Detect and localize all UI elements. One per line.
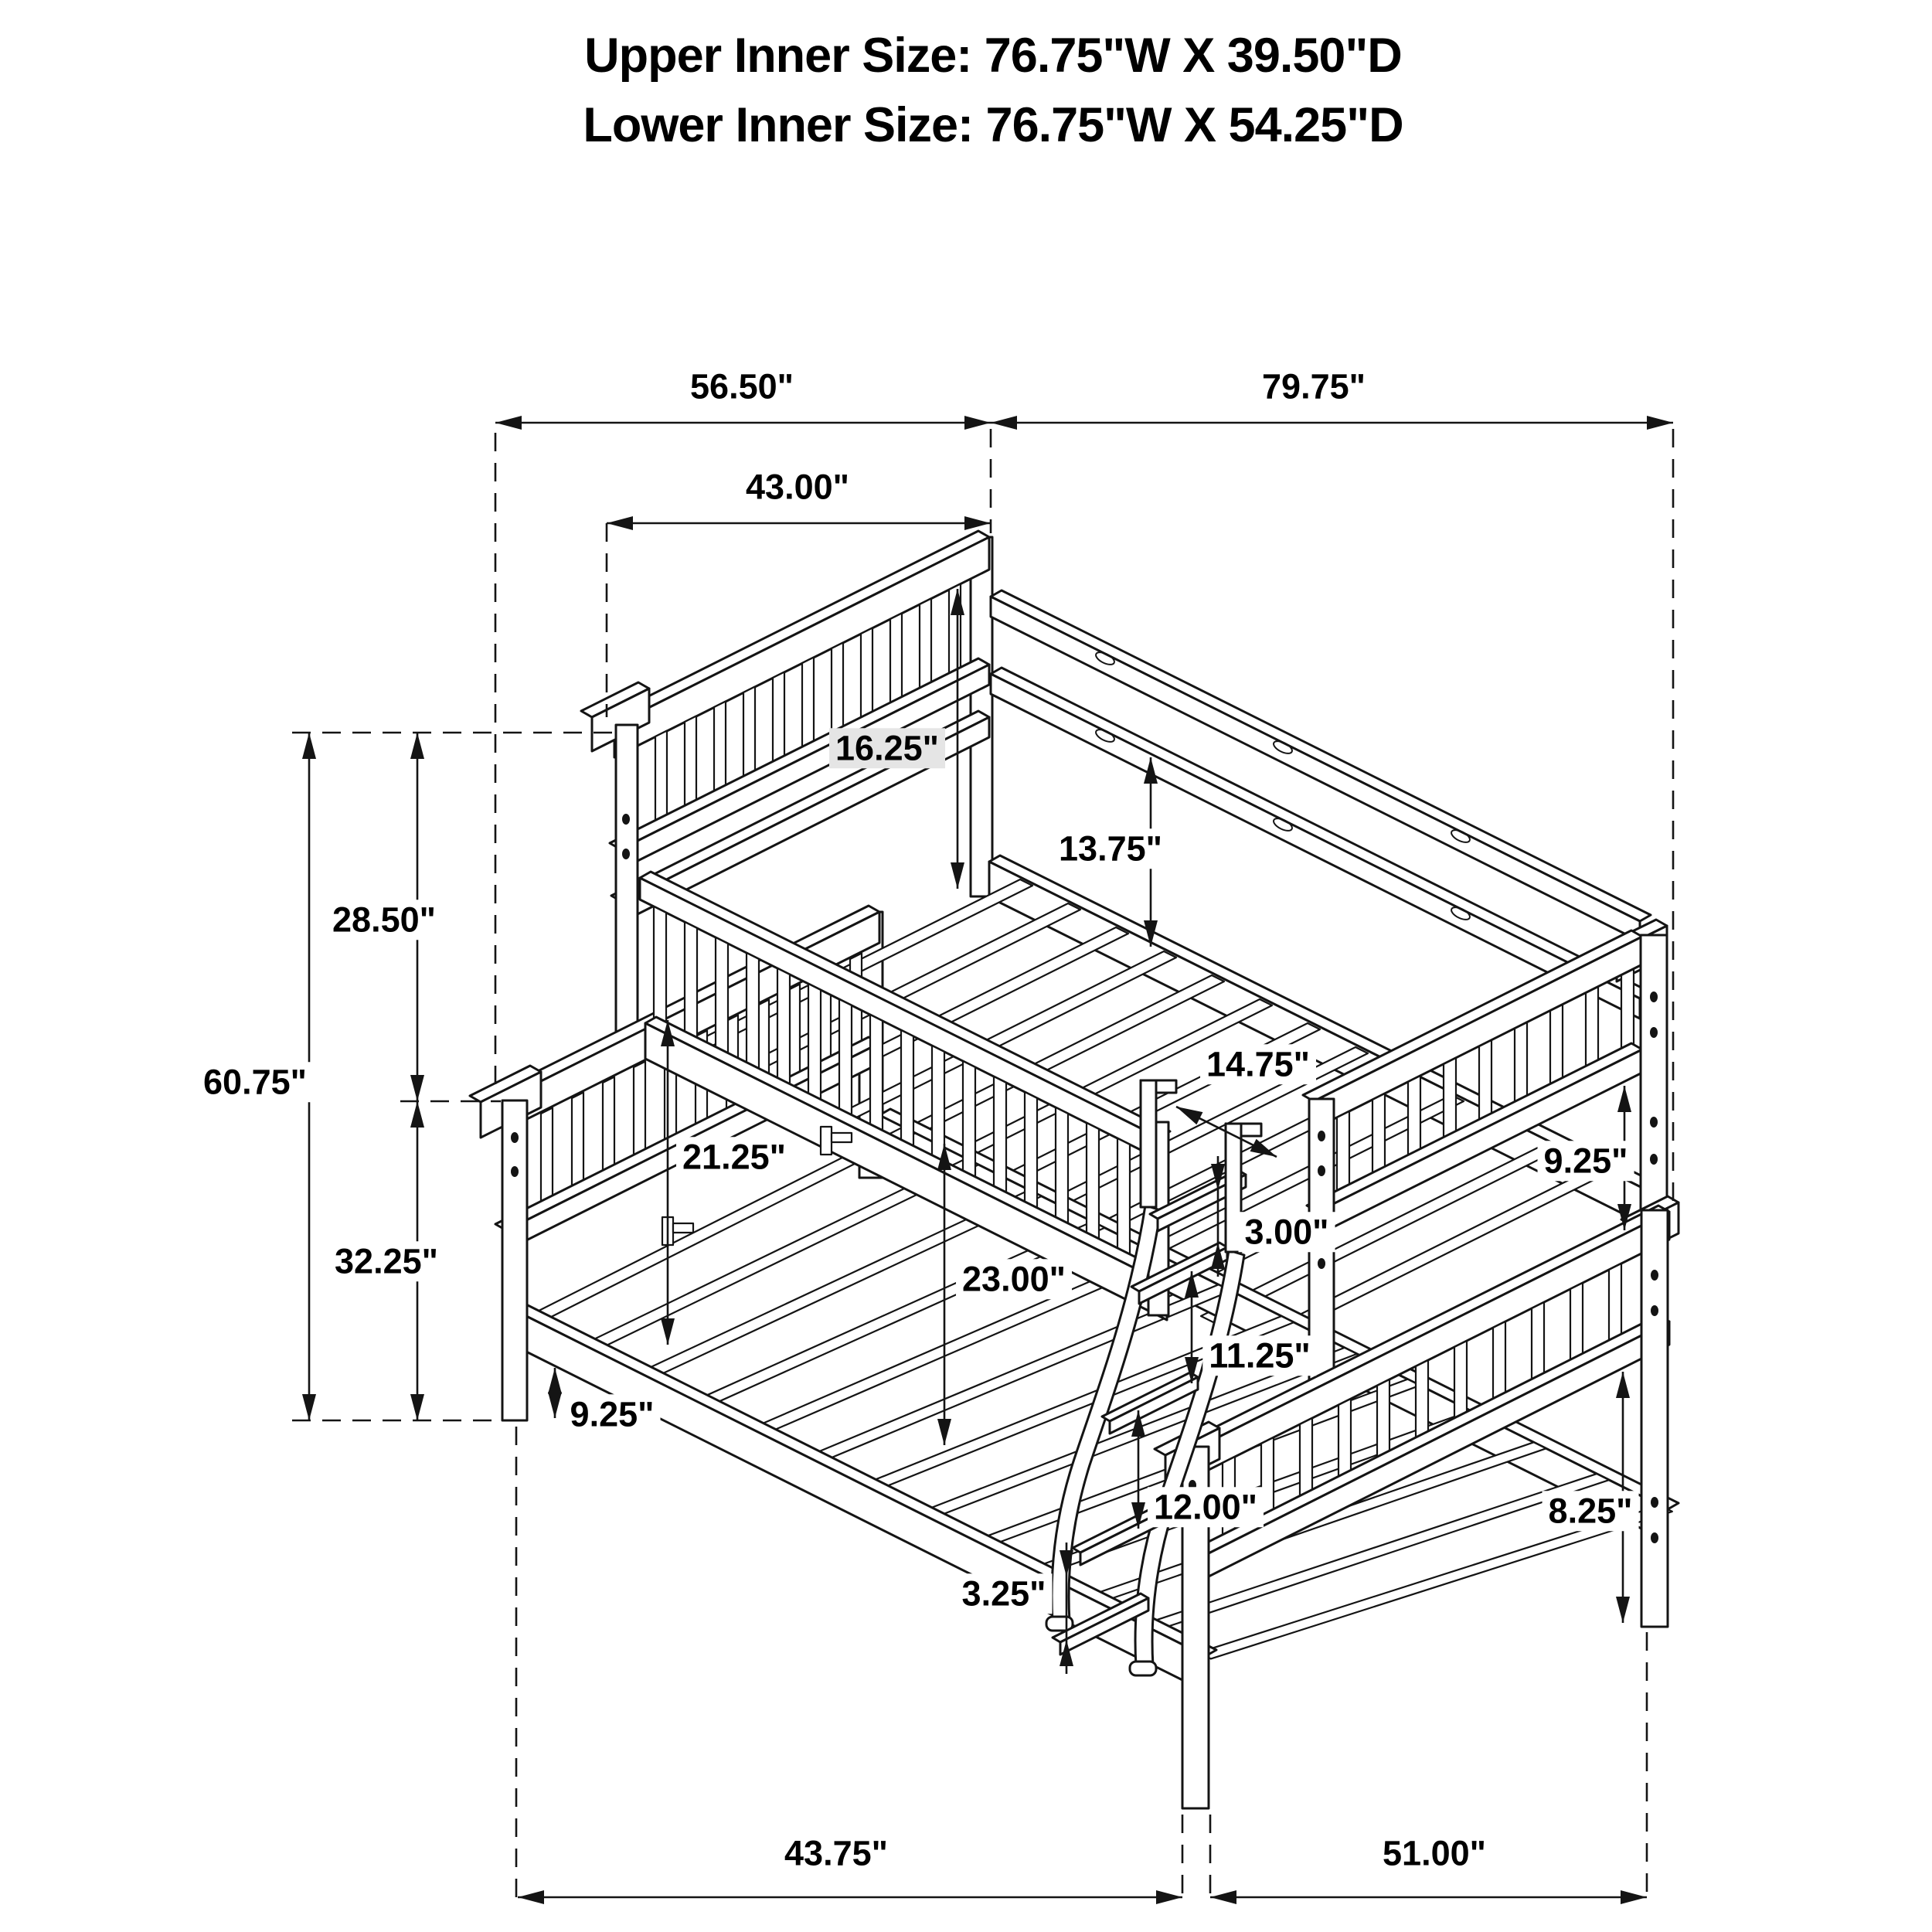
- dim-label-upper-rail-depth: 9.25": [1538, 1141, 1634, 1181]
- dim-label-under-bed-clearance: 9.25": [564, 1394, 661, 1434]
- dim-label-ladder-opening-width: 14.75": [1200, 1044, 1316, 1084]
- page-title-upper-inner-size: Upper Inner Size: 76.75"W X 39.50"D: [584, 28, 1402, 83]
- dim-label-overall-height: 60.75": [197, 1062, 313, 1102]
- dim-label-lower-depth-left: 43.75": [778, 1833, 894, 1873]
- dim-label-upper-guardrail-height: 13.75": [1053, 828, 1168, 869]
- dim-label-lower-depth-right: 51.00": [1376, 1833, 1492, 1873]
- dim-label-bottom-step-gap: 3.25": [956, 1573, 1053, 1614]
- dim-label-upper-overall-depth: 56.50": [684, 366, 800, 406]
- dim-label-lower-section-height: 32.25": [328, 1241, 444, 1281]
- bunk-bed-dimension-diagram: Upper Inner Size: 76.75"W X 39.50"D Lowe…: [0, 0, 1932, 1932]
- dim-label-bunk-gap-height: 28.50": [326, 900, 442, 940]
- dim-label-upper-headboard-depth: 43.00": [740, 467, 855, 507]
- dim-label-overall-length: 79.75": [1256, 366, 1372, 406]
- page-title-lower-inner-size: Lower Inner Size: 76.75"W X 54.25"D: [583, 97, 1403, 153]
- isometric-bunk-bed-drawing: [0, 0, 1932, 1932]
- dim-label-upper-headboard-height: 16.25": [829, 728, 945, 768]
- dim-label-ladder-step-spacing-lower: 12.00": [1148, 1487, 1264, 1527]
- dim-label-under-bunk-clearance: 23.00": [956, 1259, 1072, 1299]
- dim-label-lower-rail-depth: 8.25": [1543, 1491, 1639, 1531]
- dim-label-rail-to-step-gap: 3.00": [1239, 1212, 1335, 1252]
- dim-label-ladder-step-spacing-upper: 11.25": [1202, 1335, 1316, 1376]
- dim-label-lower-headboard-clearance: 21.25": [676, 1137, 792, 1177]
